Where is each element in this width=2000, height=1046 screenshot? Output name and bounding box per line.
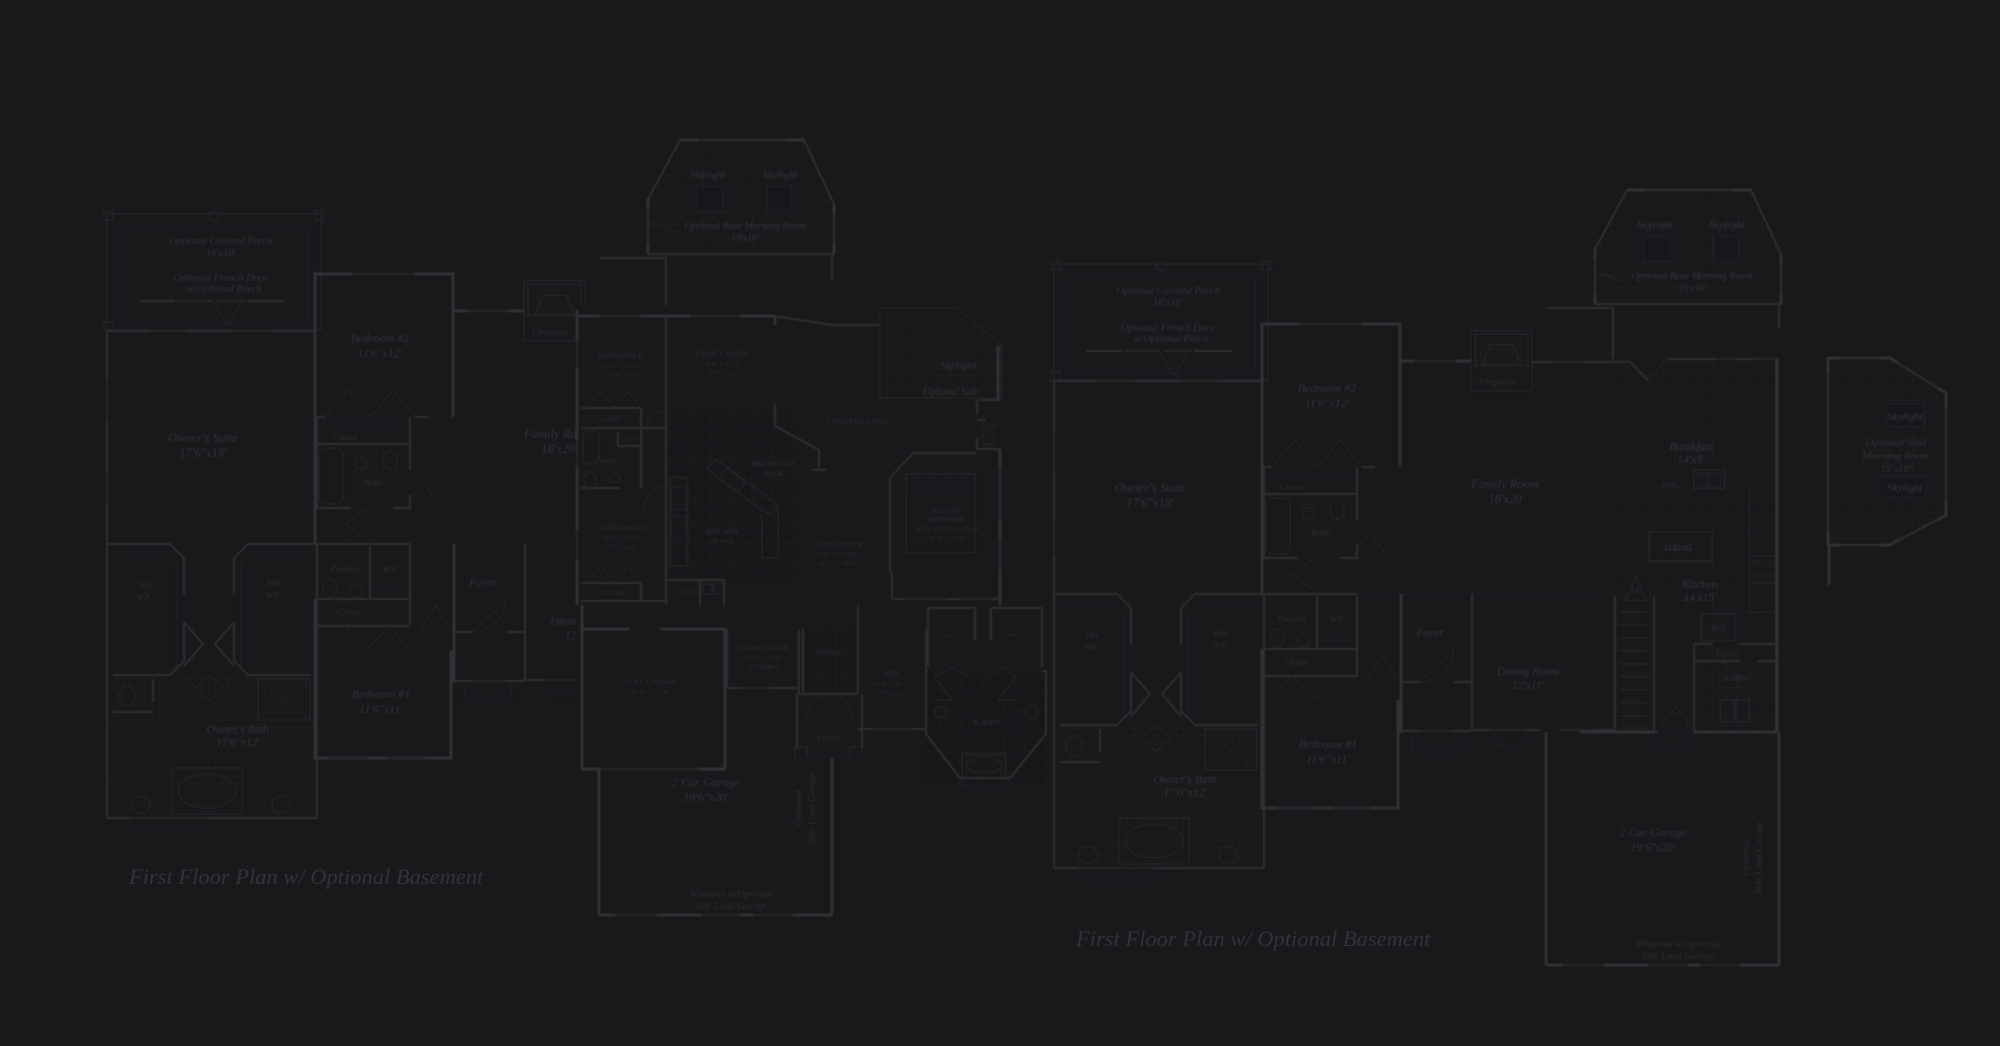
svg-text:FOYER: FOYER — [817, 649, 842, 657]
svg-text:NOOK: NOOK — [763, 470, 785, 478]
svg-text:BEDROOM: BEDROOM — [929, 517, 964, 524]
svg-text:ENTRY: ENTRY — [817, 736, 840, 743]
svg-text:LINEN: LINEN — [622, 438, 638, 443]
svg-text:M. BATH: M. BATH — [973, 720, 1002, 727]
svg-text:First Floor Plan w/ Optional: First Floor Plan w/ Optional Basement — [1075, 926, 1431, 951]
svg-text:W.I.C.: W.I.C. — [942, 632, 960, 639]
svg-text:(9' CLG): (9' CLG) — [710, 370, 734, 377]
svg-text:BREAKFAST: BREAKFAST — [752, 460, 796, 468]
svg-text:Skylight: Skylight — [940, 360, 976, 372]
svg-text:12'0" CEILING: 12'0" CEILING — [817, 551, 860, 558]
svg-text:UTILITY: UTILITY — [678, 590, 703, 596]
svg-text:First Floor Plan w/ Optional: First Floor Plan w/ Optional Basement — [128, 864, 484, 889]
svg-text:11'-6" x 14'-0": 11'-6" x 14'-0" — [743, 655, 783, 662]
svg-text:BATH: BATH — [600, 459, 617, 465]
svg-text:LIVING ROOM: LIVING ROOM — [813, 541, 864, 549]
svg-text:2 CAR GARAGE: 2 CAR GARAGE — [623, 678, 678, 686]
svg-text:BEDROOM #3: BEDROOM #3 — [599, 352, 646, 360]
svg-text:12'-0" x 13'-4": 12'-0" x 13'-4" — [602, 363, 642, 370]
svg-text:12'-0" x 11'-4": 12'-0" x 11'-4" — [602, 535, 642, 542]
svg-text:FAMILY ROOM: FAMILY ROOM — [696, 350, 748, 358]
svg-text:(2 STORY): (2 STORY) — [748, 664, 779, 671]
svg-text:KITCHEN: KITCHEN — [706, 528, 740, 536]
svg-text:Optional Side: Optional Side — [923, 387, 979, 398]
svg-text:CLOSET: CLOSET — [602, 591, 626, 597]
svg-text:DINING ROOM: DINING ROOM — [737, 644, 789, 652]
svg-text:20'-4" x 21'-6": 20'-4" x 21'-6" — [630, 689, 670, 696]
svg-text:(OPT. SITTING AREA): (OPT. SITTING AREA) — [916, 526, 977, 533]
svg-text:CLOSET: CLOSET — [599, 417, 623, 423]
svg-text:10'-6" x 11'-2": 10'-6" x 11'-2" — [871, 681, 911, 688]
svg-text:(13'-8" CLG): (13'-8" CLG) — [604, 372, 640, 379]
svg-text:(9' CLG): (9' CLG) — [879, 690, 903, 697]
svg-text:BATH: BATH — [981, 423, 998, 429]
svg-text:16'-6" x 17'-6": 16'-6" x 17'-6" — [928, 536, 966, 542]
svg-text:COVERED PATIO: COVERED PATIO — [827, 417, 889, 426]
svg-text:BEDROOM #4: BEDROOM #4 — [599, 524, 646, 532]
svg-text:W.I.C.: W.I.C. — [1007, 632, 1025, 639]
svg-text:(9' CLG): (9' CLG) — [610, 544, 634, 551]
svg-text:14'-8" x 17'-2": 14'-8" x 17'-2" — [702, 361, 742, 368]
svg-text:16'-2" x 19'-8": 16'-2" x 19'-8" — [818, 560, 858, 567]
svg-text:10' x 13': 10' x 13' — [711, 538, 734, 545]
svg-text:MASTER: MASTER — [933, 508, 962, 515]
svg-text:DEN: DEN — [883, 670, 899, 678]
